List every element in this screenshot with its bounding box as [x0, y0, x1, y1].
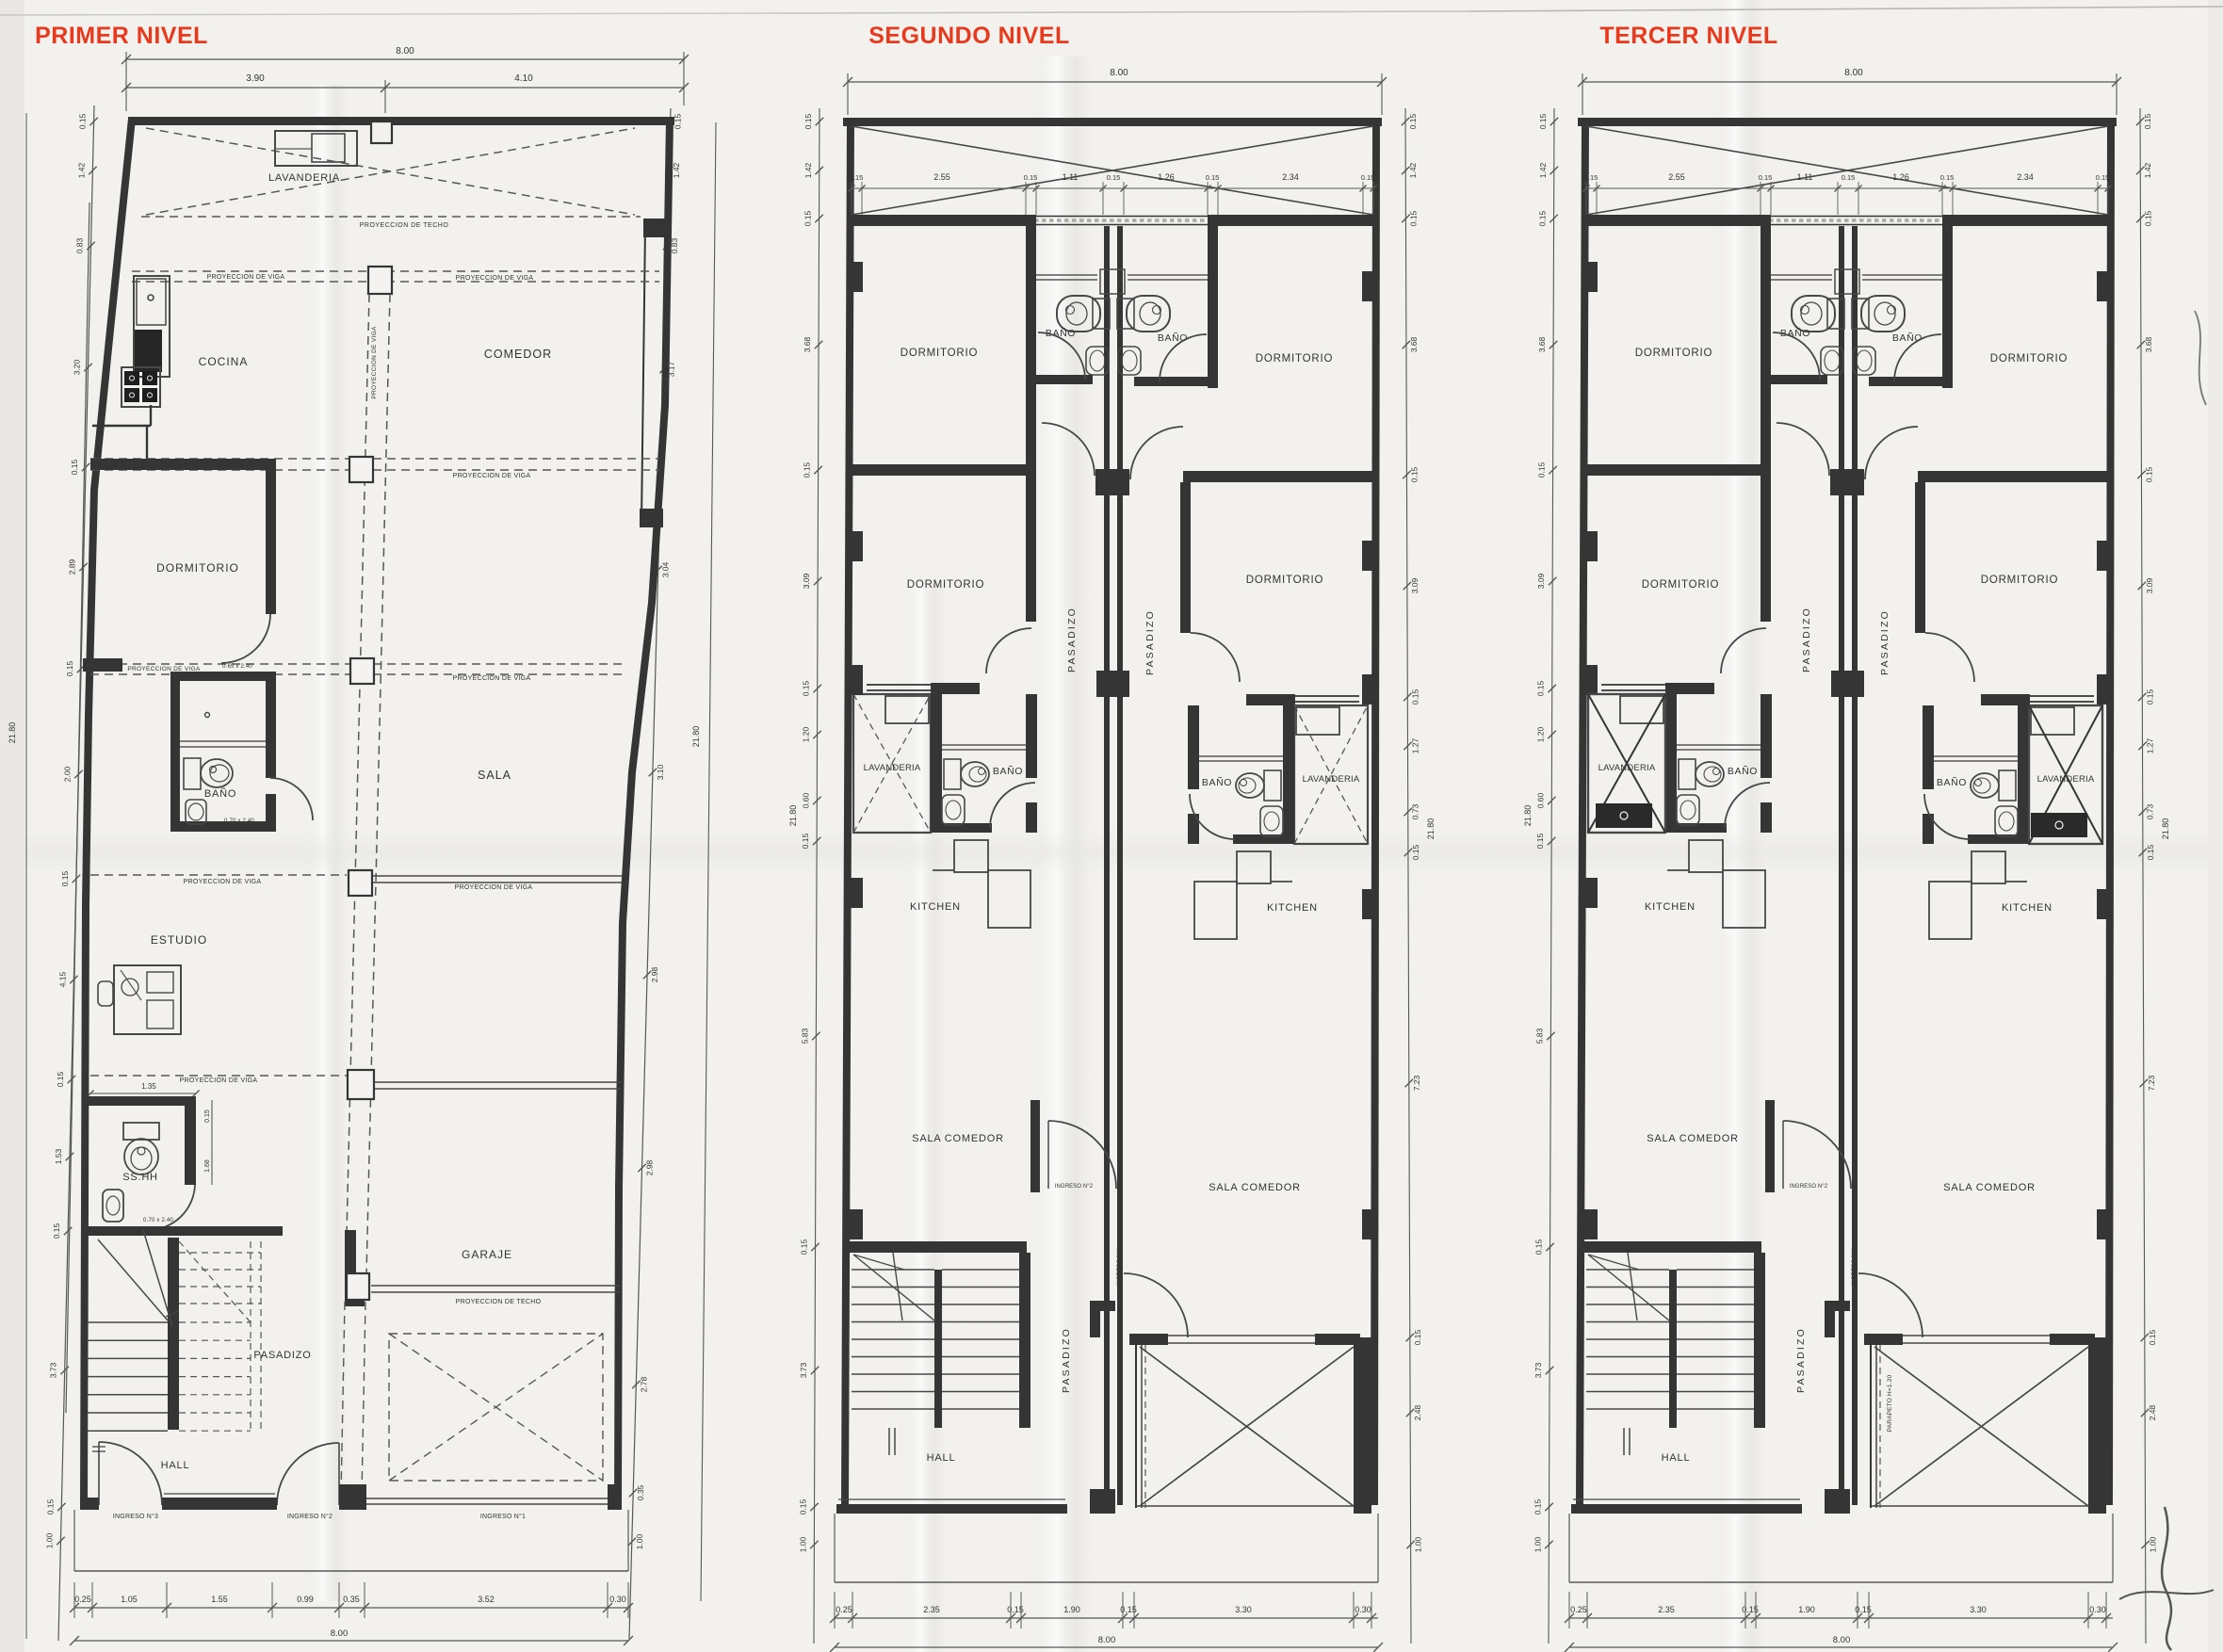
svg-text:PRIMER NIVEL: PRIMER NIVEL	[35, 23, 208, 49]
svg-text:3.68: 3.68	[803, 336, 812, 352]
svg-text:3.30: 3.30	[1235, 1605, 1252, 1614]
svg-text:INGRESO N°1: INGRESO N°1	[480, 1513, 526, 1520]
svg-text:0.15: 0.15	[1413, 1329, 1422, 1345]
svg-text:0.15: 0.15	[1408, 210, 1418, 226]
svg-text:PROYECCION DE VIGA: PROYECCION DE VIGA	[127, 666, 201, 672]
svg-text:PASADIZO: PASADIZO	[1144, 609, 1156, 675]
svg-text:DORMITORIO: DORMITORIO	[901, 348, 979, 359]
svg-text:0.99: 0.99	[297, 1595, 314, 1604]
svg-text:0.30: 0.30	[1355, 1605, 1371, 1614]
svg-text:LAVANDERIA: LAVANDERIA	[864, 763, 921, 773]
svg-text:2.98: 2.98	[645, 1159, 655, 1175]
svg-text:PASADIZO: PASADIZO	[1066, 607, 1078, 672]
svg-text:0.70 x 2.40: 0.70 x 2.40	[143, 1218, 173, 1223]
svg-text:0.73: 0.73	[1411, 803, 1420, 819]
svg-text:0.15: 0.15	[850, 173, 864, 182]
svg-text:PROYECCION DE VIGA: PROYECCION DE VIGA	[455, 884, 533, 891]
svg-text:0.15: 0.15	[802, 680, 811, 696]
svg-text:1.42: 1.42	[1408, 162, 1418, 178]
svg-text:1.53: 1.53	[54, 1148, 63, 1164]
svg-text:2.98: 2.98	[650, 966, 659, 982]
svg-text:PROYECCION DE VIGA: PROYECCION DE VIGA	[184, 879, 262, 885]
svg-text:8.00: 8.00	[396, 46, 414, 57]
svg-text:2.89: 2.89	[68, 559, 77, 575]
svg-text:PROYECCION DE VIGA: PROYECCION DE VIGA	[371, 326, 378, 399]
svg-text:DORMITORIO: DORMITORIO	[1246, 575, 1324, 586]
svg-text:1.27: 1.27	[1410, 737, 1420, 753]
svg-text:2.48: 2.48	[1413, 1404, 1422, 1420]
svg-text:0.30: 0.30	[609, 1595, 626, 1604]
svg-text:PROYECCION DE VIGA: PROYECCION DE VIGA	[453, 675, 531, 682]
svg-text:8.00: 8.00	[1098, 1635, 1116, 1645]
svg-text:0.25: 0.25	[836, 1605, 852, 1614]
svg-text:PROYECCION DE VIGA: PROYECCION DE VIGA	[207, 274, 285, 281]
svg-text:PROYECCION DE VIGA: PROYECCION DE VIGA	[453, 473, 531, 479]
svg-text:INGRESO N°1: INGRESO N°1	[1117, 1247, 1123, 1286]
svg-text:LAVANDERIA: LAVANDERIA	[1303, 774, 1360, 785]
svg-text:0.15: 0.15	[1120, 1605, 1137, 1614]
svg-text:DORMITORIO: DORMITORIO	[156, 561, 239, 575]
svg-text:0.15: 0.15	[45, 1498, 55, 1514]
svg-text:21.80: 21.80	[691, 726, 701, 748]
svg-text:PROYECCION DE VIGA: PROYECCION DE VIGA	[180, 1077, 258, 1084]
svg-text:GARAJE: GARAJE	[462, 1248, 512, 1261]
svg-text:0.15: 0.15	[70, 459, 79, 475]
svg-text:PASADIZO: PASADIZO	[1061, 1327, 1072, 1393]
svg-text:3.52: 3.52	[478, 1595, 495, 1604]
svg-text:INGRESO N°2: INGRESO N°2	[1055, 1184, 1094, 1190]
svg-text:PROYECCION DE TECHO: PROYECCION DE TECHO	[456, 1299, 542, 1305]
svg-text:HALL: HALL	[161, 1460, 190, 1471]
svg-text:0.15: 0.15	[204, 1109, 211, 1123]
svg-text:8.00: 8.00	[331, 1628, 349, 1639]
svg-text:1.00: 1.00	[44, 1532, 54, 1548]
svg-text:0.15: 0.15	[800, 1239, 809, 1255]
svg-text:0.25: 0.25	[74, 1595, 91, 1604]
svg-text:0.15: 0.15	[1206, 173, 1220, 182]
svg-text:SALA: SALA	[478, 769, 511, 782]
svg-text:2.00: 2.00	[62, 766, 72, 782]
svg-text:0.65 x 2.40: 0.65 x 2.40	[222, 664, 252, 670]
svg-text:0.15: 0.15	[803, 210, 813, 226]
svg-text:PARAPETO H=1.20: PARAPETO H=1.20	[1887, 1374, 1893, 1432]
svg-text:0.15: 0.15	[1409, 466, 1419, 482]
svg-text:DORMITORIO: DORMITORIO	[1256, 353, 1334, 364]
svg-text:1.11: 1.11	[1063, 172, 1079, 182]
svg-text:3.73: 3.73	[49, 1362, 58, 1378]
svg-text:0.15: 0.15	[1361, 173, 1375, 182]
svg-text:0.15: 0.15	[803, 462, 812, 478]
svg-text:1.00: 1.00	[1414, 1536, 1423, 1552]
svg-text:BAÑO: BAÑO	[204, 787, 236, 800]
svg-text:PASADIZO: PASADIZO	[253, 1350, 311, 1361]
svg-text:0.15: 0.15	[1024, 173, 1038, 182]
svg-text:3.20: 3.20	[73, 359, 82, 375]
svg-text:SEGUNDO NIVEL: SEGUNDO NIVEL	[868, 23, 1069, 49]
svg-text:COCINA: COCINA	[199, 355, 249, 368]
svg-text:7.23: 7.23	[1412, 1075, 1421, 1091]
svg-text:0.15: 0.15	[673, 113, 683, 129]
svg-text:0.15: 0.15	[801, 833, 810, 849]
svg-text:TERCER NIVEL: TERCER NIVEL	[1599, 23, 1777, 49]
svg-text:INGRESO N°2: INGRESO N°2	[287, 1513, 333, 1520]
svg-text:0.15: 0.15	[56, 1071, 65, 1087]
svg-text:1.26: 1.26	[1158, 172, 1175, 182]
svg-text:0.15: 0.15	[78, 113, 88, 129]
svg-text:PROYECCION DE VIGA: PROYECCION DE VIGA	[456, 275, 534, 282]
svg-text:HALL: HALL	[927, 1452, 956, 1464]
svg-text:INGRESO N°3: INGRESO N°3	[113, 1513, 158, 1520]
svg-text:1.42: 1.42	[803, 162, 813, 178]
svg-text:1.90: 1.90	[1063, 1605, 1080, 1614]
svg-text:SALA COMEDOR: SALA COMEDOR	[1209, 1182, 1301, 1193]
svg-text:2.55: 2.55	[933, 172, 950, 182]
svg-text:3.68: 3.68	[1409, 336, 1419, 352]
svg-text:0.15: 0.15	[1007, 1605, 1024, 1614]
svg-text:5.83: 5.83	[800, 1028, 809, 1044]
svg-text:0.83: 0.83	[75, 237, 85, 253]
svg-text:1.00: 1.00	[798, 1536, 807, 1552]
svg-text:3.04: 3.04	[661, 561, 671, 577]
svg-text:BAÑO: BAÑO	[1158, 332, 1188, 344]
svg-text:2.78: 2.78	[639, 1376, 648, 1392]
svg-text:LAVANDERIA: LAVANDERIA	[268, 172, 340, 184]
svg-text:0.15: 0.15	[1408, 113, 1418, 129]
svg-text:1.35: 1.35	[141, 1082, 156, 1091]
svg-text:SS.HH: SS.HH	[122, 1172, 158, 1183]
svg-text:SALA COMEDOR: SALA COMEDOR	[912, 1133, 1004, 1144]
svg-text:0.70 x 2.40: 0.70 x 2.40	[224, 818, 254, 824]
svg-text:3.09: 3.09	[802, 573, 811, 589]
svg-text:ESTUDIO: ESTUDIO	[151, 933, 207, 947]
svg-text:KITCHEN: KITCHEN	[1267, 902, 1318, 914]
svg-text:21.80: 21.80	[1426, 818, 1436, 840]
svg-text:3.90: 3.90	[246, 73, 265, 84]
svg-text:BAÑO: BAÑO	[1202, 776, 1232, 788]
svg-text:21.80: 21.80	[788, 805, 798, 827]
svg-text:0.15: 0.15	[1410, 688, 1420, 705]
svg-text:1.00: 1.00	[635, 1533, 644, 1549]
svg-text:PROYECCION DE TECHO: PROYECCION DE TECHO	[360, 222, 449, 229]
svg-text:4.10: 4.10	[514, 73, 533, 84]
svg-text:1.55: 1.55	[211, 1595, 228, 1604]
svg-text:0.35: 0.35	[343, 1595, 360, 1604]
svg-text:2.35: 2.35	[923, 1605, 940, 1614]
svg-text:DORMITORIO: DORMITORIO	[907, 579, 985, 591]
svg-text:COMEDOR: COMEDOR	[484, 348, 552, 361]
svg-text:0.15: 0.15	[65, 660, 74, 676]
svg-text:8.00: 8.00	[1110, 68, 1128, 78]
svg-text:3.10: 3.10	[656, 764, 665, 780]
svg-text:0.15: 0.15	[60, 870, 70, 886]
svg-text:4.15: 4.15	[57, 971, 67, 987]
svg-text:2.34: 2.34	[1282, 172, 1299, 182]
svg-text:21.80: 21.80	[8, 722, 17, 744]
svg-text:0.35: 0.35	[636, 1484, 645, 1500]
svg-text:0.15: 0.15	[1411, 844, 1420, 860]
svg-text:0.15: 0.15	[799, 1498, 808, 1514]
svg-text:0.15: 0.15	[52, 1223, 61, 1239]
svg-text:3.73: 3.73	[799, 1362, 808, 1378]
svg-text:1.42: 1.42	[672, 162, 681, 178]
svg-text:1.68: 1.68	[204, 1159, 211, 1173]
svg-text:1.05: 1.05	[121, 1595, 138, 1604]
svg-text:3.09: 3.09	[1410, 577, 1420, 593]
svg-text:0.15: 0.15	[1107, 173, 1121, 182]
svg-text:0.60: 0.60	[801, 792, 810, 808]
svg-text:KITCHEN: KITCHEN	[910, 901, 961, 913]
svg-text:1.42: 1.42	[76, 162, 86, 178]
svg-text:BAÑO: BAÑO	[993, 765, 1023, 777]
svg-text:1.20: 1.20	[802, 726, 811, 742]
svg-text:0.15: 0.15	[803, 113, 813, 129]
